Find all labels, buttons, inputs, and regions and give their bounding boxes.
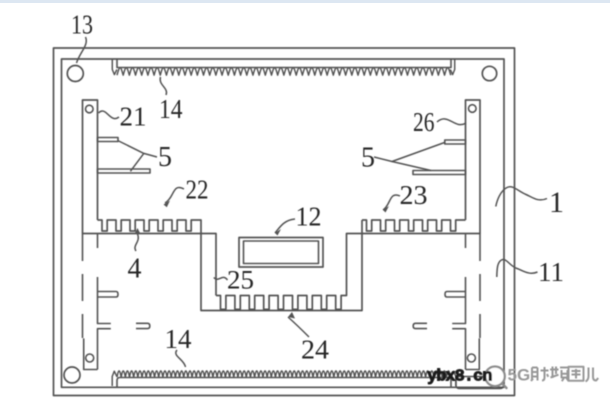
svg-text:24: 24 xyxy=(301,335,330,365)
svg-text:1: 1 xyxy=(549,186,564,219)
svg-text:ybx8.cn: ybx8.cn xyxy=(427,368,492,387)
svg-text:25: 25 xyxy=(227,266,254,295)
svg-text:21: 21 xyxy=(120,102,147,132)
svg-text:5G: 5G xyxy=(508,366,531,385)
svg-text:14: 14 xyxy=(165,324,193,354)
svg-text:14: 14 xyxy=(159,94,183,124)
svg-text:11: 11 xyxy=(538,257,564,287)
svg-text:5: 5 xyxy=(361,143,375,174)
svg-text:12: 12 xyxy=(296,202,322,232)
svg-text:23: 23 xyxy=(400,180,428,210)
svg-text:13: 13 xyxy=(71,10,93,40)
svg-text:5: 5 xyxy=(158,142,172,173)
svg-text:26: 26 xyxy=(413,107,435,137)
svg-text:4: 4 xyxy=(128,254,142,285)
svg-text:22: 22 xyxy=(186,175,209,205)
